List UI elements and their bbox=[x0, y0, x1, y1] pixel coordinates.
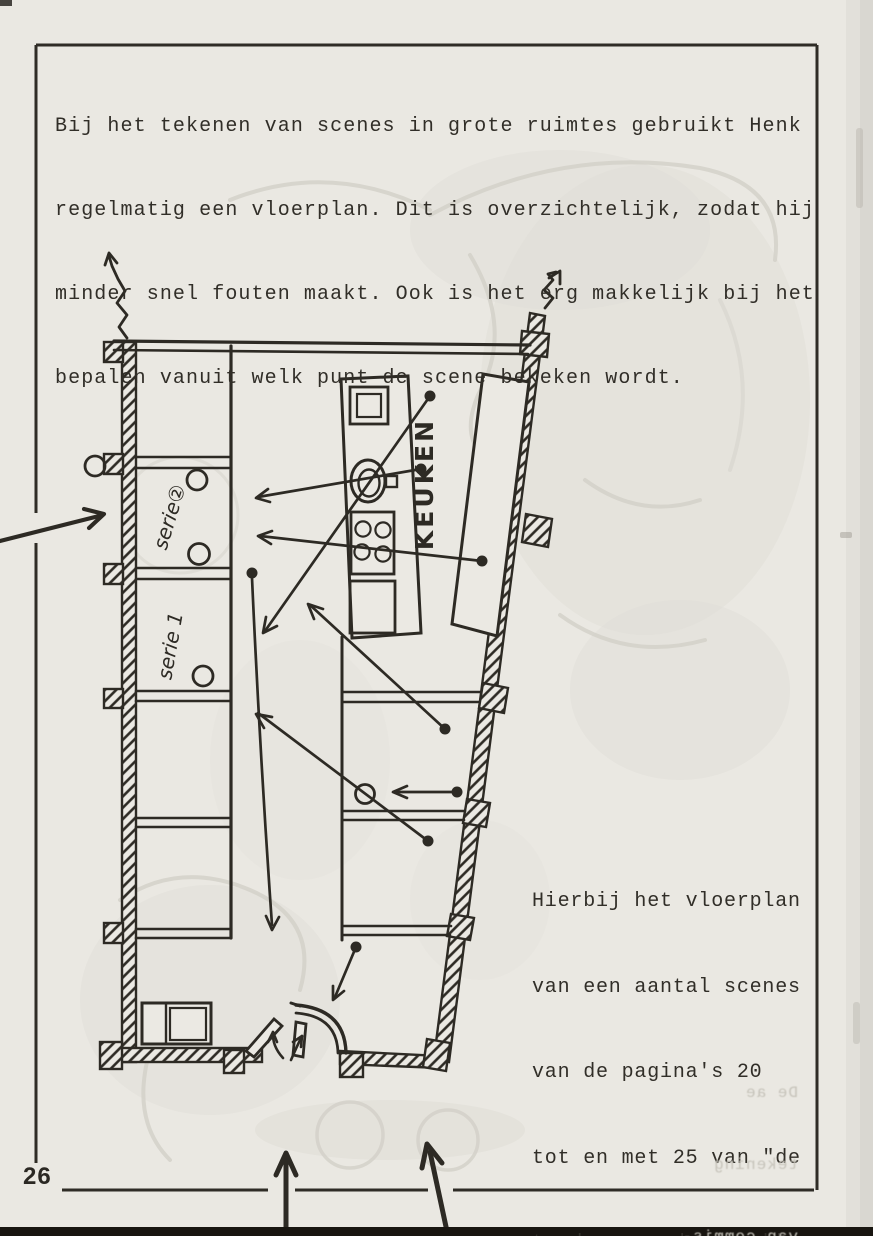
intro-line: minder snel fouten maakt. Ook is het erg… bbox=[55, 281, 815, 309]
wall-jamb bbox=[423, 1039, 450, 1071]
wall-jamb bbox=[479, 683, 508, 713]
wall-jamb bbox=[340, 1053, 363, 1077]
bed bbox=[142, 1003, 211, 1044]
scan-edge-mark bbox=[856, 128, 863, 208]
wall-jamb bbox=[104, 923, 123, 943]
scan-edge-mark bbox=[853, 1002, 860, 1044]
viewpoint-arrow bbox=[393, 786, 463, 798]
scan-corner-mark bbox=[0, 0, 12, 6]
intro-paragraph: Bij het tekenen van scenes in grote ruim… bbox=[55, 57, 815, 449]
wall-jamb bbox=[104, 689, 123, 708]
room-label-serie2: serie② bbox=[148, 482, 190, 553]
intro-line: Bij het tekenen van scenes in grote ruim… bbox=[55, 113, 815, 141]
object-circle bbox=[85, 456, 105, 476]
page-number: 26 bbox=[23, 1163, 52, 1191]
wall-jamb bbox=[104, 454, 123, 474]
ghost-line: De ae bbox=[598, 1081, 798, 1105]
caption-line: Hierbij het vloerplan bbox=[532, 888, 801, 917]
ghost-line: tekening bbox=[598, 1153, 798, 1177]
wall-jamb bbox=[104, 564, 123, 584]
viewpoint-arrow bbox=[333, 942, 362, 1001]
intro-line: bepalen vanuit welk punt de scene bekeke… bbox=[55, 365, 815, 393]
bleed-through-text: De ae tekening van commis- saris Noor- d… bbox=[598, 1033, 798, 1236]
scanned-book-page: serie② serie 1 KEUKEN bbox=[0, 0, 873, 1236]
left-room-dividers bbox=[136, 457, 231, 938]
room-label-serie1: serie 1 bbox=[152, 610, 187, 681]
wall-jamb bbox=[522, 514, 552, 547]
thick-arrow-bottom-1 bbox=[276, 1153, 296, 1236]
caption-line: van een aantal scenes bbox=[532, 974, 801, 1003]
wall-jamb bbox=[100, 1042, 122, 1069]
object-circle bbox=[189, 544, 210, 565]
thick-arrow-left-margin bbox=[0, 509, 104, 541]
object-circle bbox=[187, 470, 207, 490]
scan-edge-mark bbox=[840, 532, 852, 538]
ghost-line: van commis- bbox=[598, 1225, 798, 1236]
object-circle bbox=[193, 666, 213, 686]
wall-jamb bbox=[224, 1050, 244, 1073]
intro-line: regelmatig een vloerplan. Dit is overzic… bbox=[55, 197, 815, 225]
wall-jamb bbox=[463, 799, 490, 827]
